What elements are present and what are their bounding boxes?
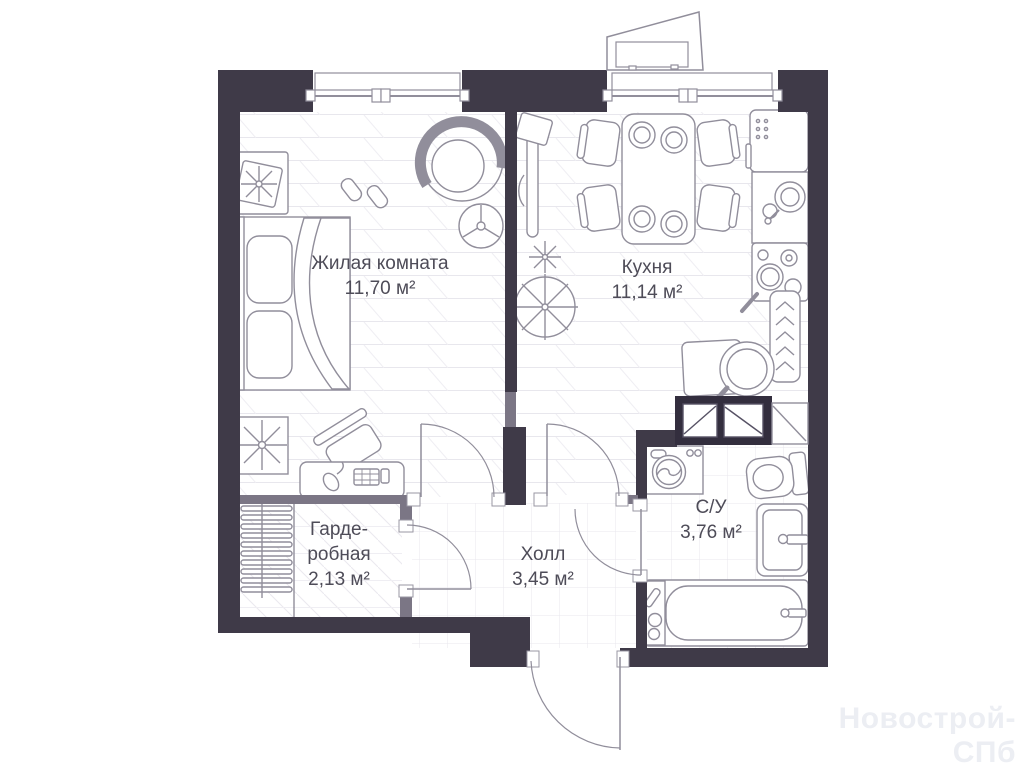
kitchen-window xyxy=(603,73,782,102)
sill xyxy=(534,493,547,506)
floor-plan-drawing xyxy=(0,0,1024,768)
balcony xyxy=(607,12,703,70)
desk xyxy=(300,462,404,498)
wall-bath-left-upper xyxy=(636,443,647,502)
toilet xyxy=(745,452,809,500)
sill xyxy=(527,651,539,667)
side-table xyxy=(459,204,503,248)
sill xyxy=(616,493,628,506)
wall-top-mid xyxy=(462,70,607,112)
floor-plan: Жилая комната 11,70 м² Кухня 11,14 м² Га… xyxy=(0,0,1024,768)
wall-bottom-bath xyxy=(620,648,828,667)
wall-bottom-left xyxy=(218,617,490,633)
dining-chair xyxy=(576,118,621,167)
wall-right xyxy=(808,70,828,667)
wall-kitchen-bath xyxy=(636,430,677,447)
sill xyxy=(633,570,647,582)
wall-bath-left-lower xyxy=(636,581,647,648)
sill xyxy=(617,651,629,667)
sill xyxy=(399,585,413,597)
bathroom-sink xyxy=(757,504,808,576)
washing-machine xyxy=(646,446,703,494)
partition-wardrobe-lower xyxy=(400,597,412,617)
sill xyxy=(407,493,420,506)
entrance-door xyxy=(531,657,620,750)
partition-living-hall xyxy=(240,495,408,504)
wall-pillar xyxy=(503,427,526,505)
bed xyxy=(233,217,350,390)
kitchen-sink xyxy=(752,172,808,243)
partition-over-pillar xyxy=(505,392,516,427)
fridge xyxy=(746,110,808,172)
bathtub xyxy=(644,580,808,646)
dining-chair xyxy=(696,184,741,233)
wall-living-kitchen xyxy=(505,112,517,392)
dining-chair xyxy=(696,118,741,167)
sill xyxy=(399,520,413,532)
wall-bottom-step xyxy=(470,617,530,667)
wall-left xyxy=(218,70,240,633)
floor-plant xyxy=(237,417,288,474)
dining-chair xyxy=(576,184,621,233)
living-room-window xyxy=(306,73,469,102)
sill xyxy=(633,499,647,511)
nightstand xyxy=(233,152,288,214)
